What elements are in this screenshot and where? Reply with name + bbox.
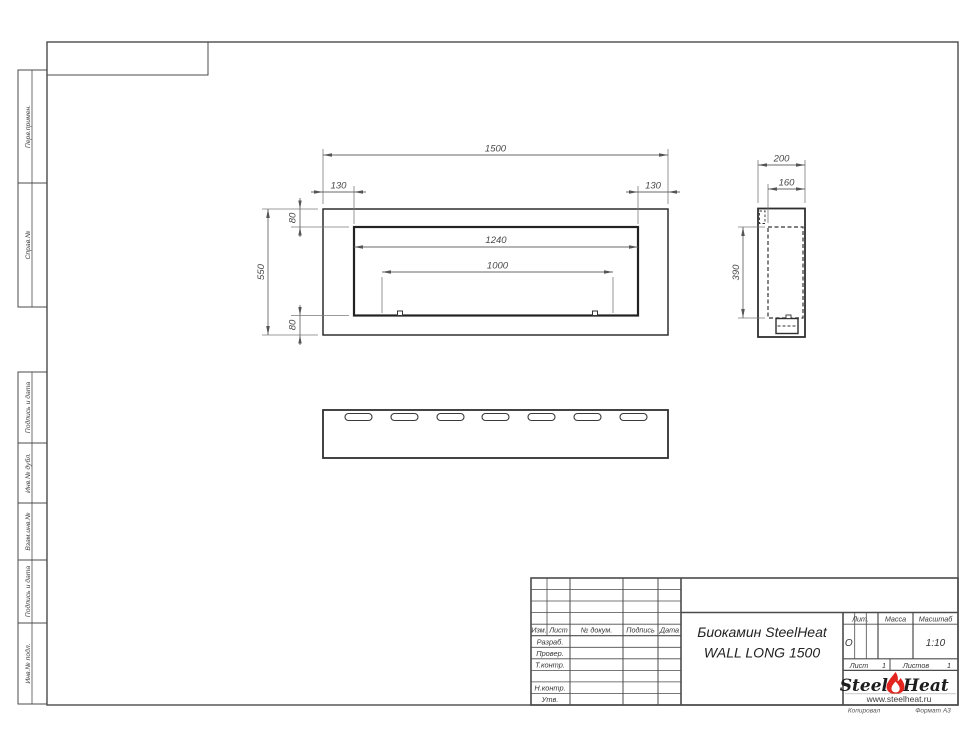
stamp-sprav-no: Справ.№ [25, 230, 32, 259]
tb-sheets-label: Листов [902, 661, 929, 670]
vent-slot [437, 414, 464, 421]
tb-scale-value: 1:10 [926, 638, 946, 649]
stamp-inv-podl: Инв.№ подл. [24, 643, 32, 683]
tb-lit-label: Лит. [851, 615, 869, 624]
dim-side-inner-height: 390 [731, 264, 742, 281]
tb-row-prover: Провер. [536, 649, 564, 658]
tb-col-list: Лист [548, 626, 568, 635]
dim-front-offset-top: 80 [288, 212, 299, 223]
dim-front-overall-height: 550 [256, 263, 267, 280]
vent-slot [528, 414, 555, 421]
sheet-frame [47, 42, 958, 705]
burner-tab-left [398, 311, 403, 316]
doc-title-line2: WALL LONG 1500 [704, 645, 820, 661]
dim-front-burner-length: 1000 [487, 261, 509, 272]
tb-massa-label: Масса [885, 615, 906, 624]
margin-stamps-lower [18, 372, 47, 704]
vent-slot [482, 414, 509, 421]
doc-ref-box [47, 42, 208, 75]
tb-sheets-value: 1 [947, 661, 951, 670]
side-view-dimension-lines [743, 165, 805, 318]
burner-tab-right [593, 311, 598, 316]
bottom-view [323, 410, 668, 458]
drawing-sheet: Перв.примен. Справ.№ Подпись и дата Инв.… [0, 0, 970, 749]
dim-front-overall-width: 1500 [485, 144, 507, 155]
vent-slot [345, 414, 372, 421]
dim-front-opening-width: 1240 [485, 235, 507, 246]
tb-row-tkontr: Т.контр. [535, 660, 565, 669]
footer-copied-label: Копировал [848, 708, 881, 715]
drawing-canvas: Перв.примен. Справ.№ Подпись и дата Инв.… [0, 0, 970, 749]
side-view-extension-lines [738, 160, 805, 318]
stamp-vzam-inv: Взам.инв.№ [25, 512, 32, 550]
logo-url-text: www.steelheat.ru [866, 694, 932, 704]
logo-heat-text: Heat [902, 676, 949, 696]
stamp-inv-dubl: Инв.№ дубл. [24, 453, 32, 493]
tb-sheet-label: Лист [849, 661, 869, 670]
steelheat-logo: Steel Heat www.steelheat.ru [840, 672, 956, 704]
tb-col-izm: Изм. [531, 626, 546, 635]
dim-front-offset-right: 130 [645, 181, 662, 192]
side-view-hidden-cavity [768, 227, 803, 318]
vent-slot [574, 414, 601, 421]
tb-row-razrab: Разраб. [537, 637, 564, 646]
tb-row-nkontr: Н.контр. [534, 683, 565, 692]
vent-slot [391, 414, 418, 421]
vent-slot [620, 414, 647, 421]
side-view-hidden-bracket [760, 211, 766, 224]
tb-lit-value: О [845, 638, 853, 649]
tb-col-data: Дата [659, 626, 679, 635]
margin-stamps-upper [18, 70, 47, 307]
stamp-podpis-data-2: Подпись и дата [24, 566, 32, 618]
logo-steel-text: Steel [840, 676, 889, 696]
tb-col-docnum: № докум. [581, 626, 613, 635]
footer-format-label: Формат А3 [915, 708, 951, 715]
dim-side-inner-depth: 160 [779, 178, 796, 189]
side-view [758, 209, 805, 338]
tb-sheet-value: 1 [882, 661, 886, 670]
dim-front-offset-left: 130 [331, 181, 348, 192]
doc-title-line1: Биокамин SteelHeat [697, 624, 828, 640]
stamp-perv-primen: Перв.примен. [25, 105, 32, 148]
dim-side-overall-depth: 200 [773, 154, 791, 165]
tb-scale-label: Масштаб [919, 615, 954, 624]
stamp-podpis-data-1: Подпись и дата [24, 382, 32, 434]
dim-front-offset-bottom: 80 [288, 319, 299, 330]
tb-col-podpis: Подпись [626, 626, 655, 635]
side-view-burner-notch [786, 315, 791, 319]
tb-row-utv: Утв. [541, 695, 559, 704]
